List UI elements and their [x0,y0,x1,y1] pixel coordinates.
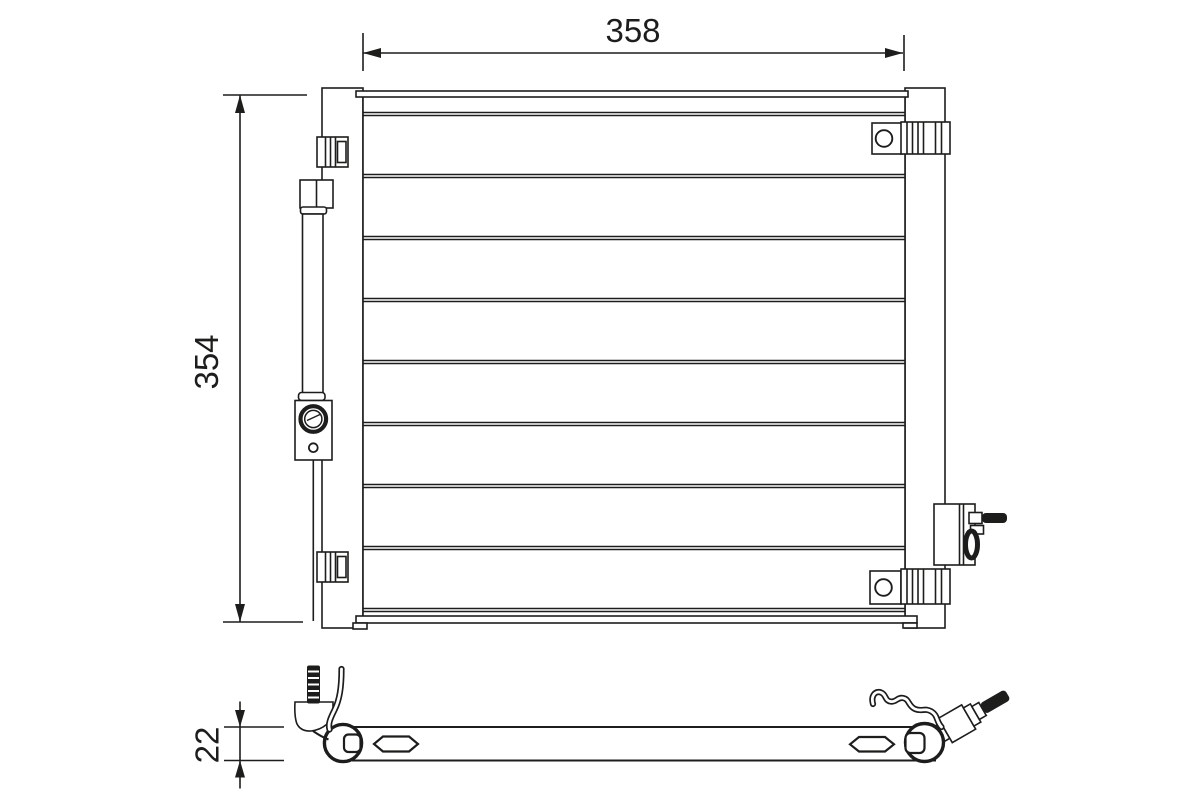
clip-inset [338,142,347,163]
condenser-drawing-svg: 358 354 [0,0,1200,800]
louver-slot-left [374,737,418,752]
dim-height-arrow-top [235,95,245,113]
dim-width-label: 358 [605,12,660,49]
sight-glass-port [309,443,318,452]
dim-width-arrow-left [363,48,381,58]
dim-height-arrow-bottom [235,604,245,622]
dim-depth-arrow-top [235,710,245,727]
sight-glass-window [305,410,322,427]
strap-outline [872,692,941,727]
clip-body [901,122,950,154]
bracket-hole [876,130,893,147]
threaded-stud-icon [982,513,1007,523]
end-cap-left-port [344,735,361,753]
drier-flange-top [301,207,327,214]
drier-flange-bottom [299,393,326,401]
inlet-fitting-block [300,180,333,208]
dimension-height: 354 [188,95,307,622]
clip-body [901,569,950,604]
technical-drawing: 358 354 [0,0,1200,800]
top-header-plate [356,91,908,97]
dimension-depth: 22 [189,702,285,789]
clip-inset [338,557,347,578]
retaining-hook [329,669,341,730]
dim-width-arrow-right [885,48,903,58]
clip-top-left [317,137,348,167]
dim-height-label: 354 [188,334,225,389]
outlet-connection-block [934,504,1007,565]
end-cap-right-port [906,733,925,753]
dim-depth-arrow-bottom [235,761,245,778]
sight-glass-block [295,401,332,461]
threaded-stud-icon [980,689,1011,714]
bracket-hole [875,579,892,596]
drier-tube [303,214,324,393]
clip-bottom-left [317,552,348,582]
louver-slot-right [850,737,894,752]
bottom-right-lip [903,623,917,628]
bottom-header-plate [356,616,917,623]
front-view: 358 354 [188,12,1007,629]
side-view: 22 [189,666,1015,789]
mount-bottom-right [870,569,950,604]
dimension-width: 358 [363,12,904,71]
mount-top-right [872,122,950,154]
side-mount-right-strap [872,692,941,727]
o-ring-port [966,531,978,558]
stud-base [969,513,982,524]
bottom-left-lip [353,623,367,629]
left-tank [322,88,363,628]
side-core-band [352,727,936,761]
dim-depth-label: 22 [189,727,226,764]
